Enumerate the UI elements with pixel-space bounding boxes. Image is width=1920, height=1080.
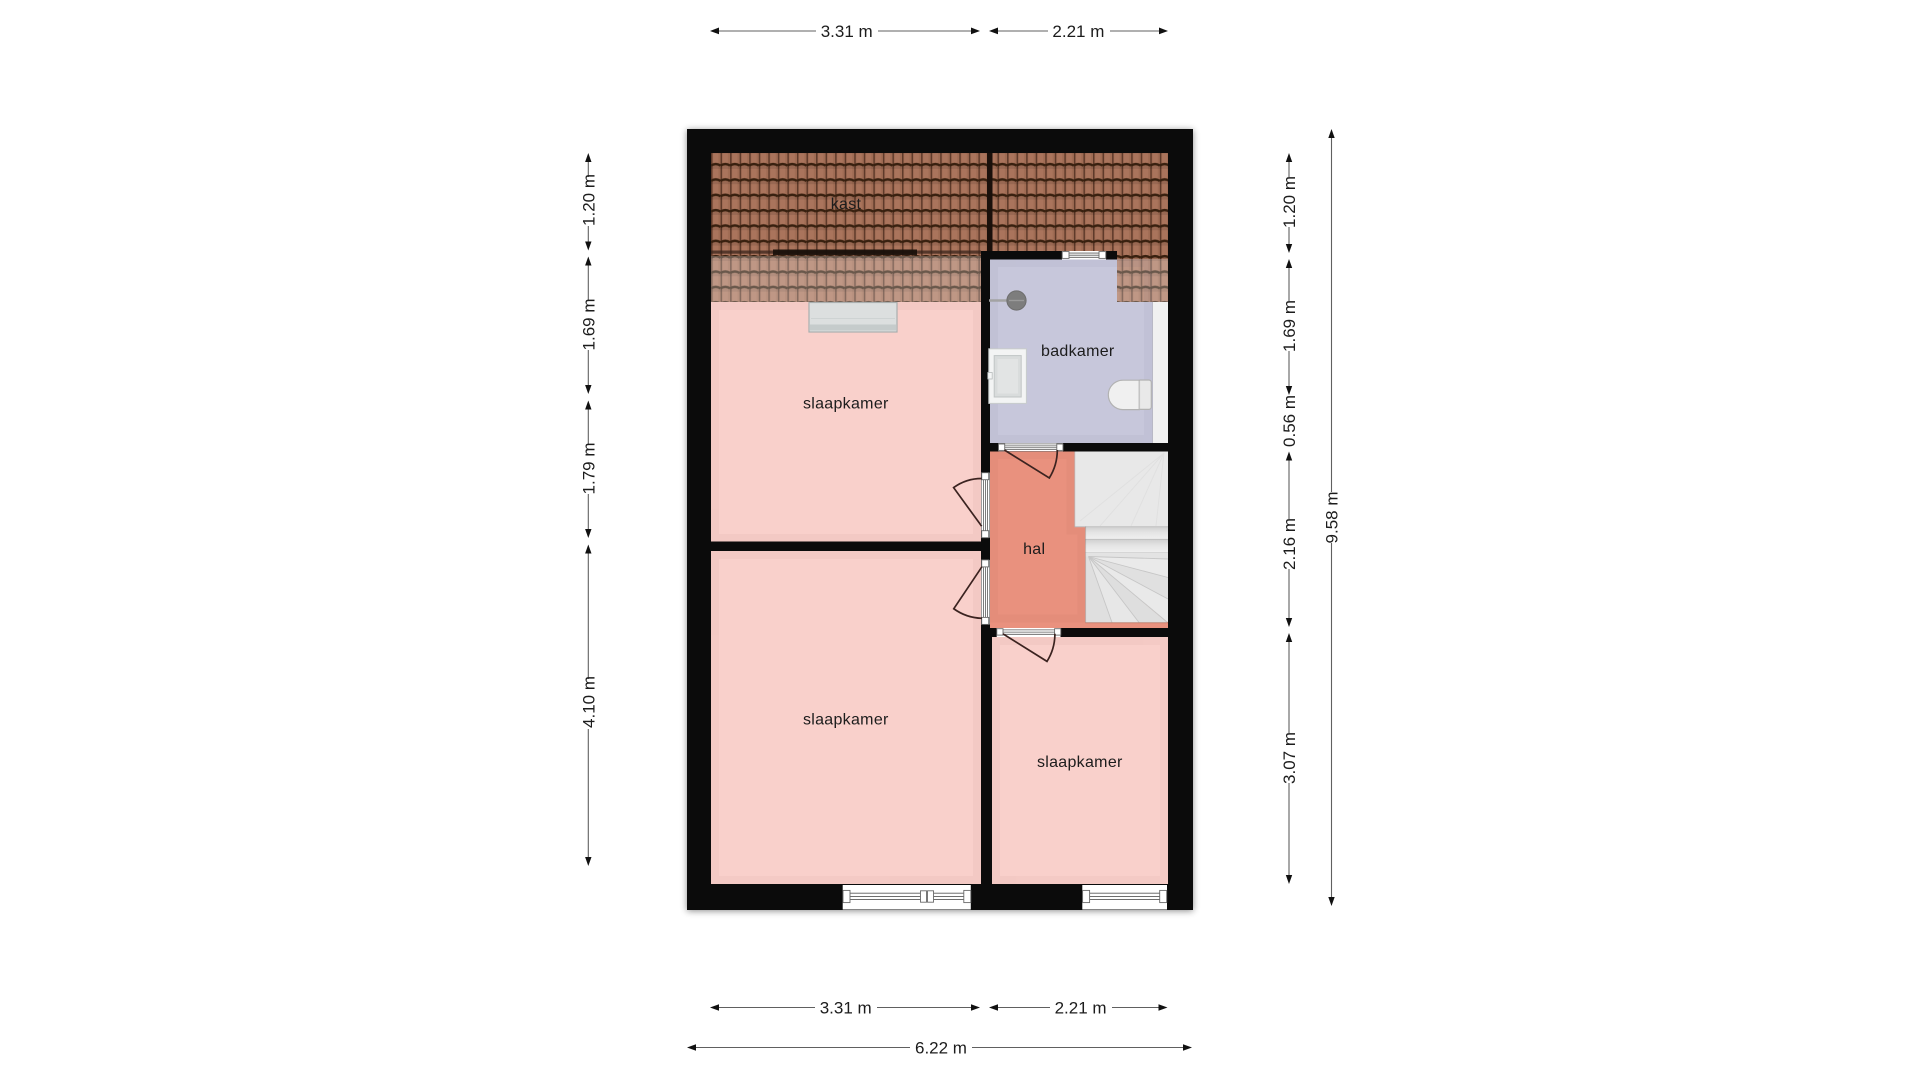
svg-text:0.56 m: 0.56 m: [1280, 395, 1299, 447]
svg-text:1.20 m: 1.20 m: [579, 174, 598, 226]
svg-text:1.69 m: 1.69 m: [579, 299, 598, 351]
svg-text:3.31 m: 3.31 m: [821, 22, 873, 41]
svg-text:slaapkamer: slaapkamer: [803, 712, 889, 729]
svg-text:2.21 m: 2.21 m: [1052, 22, 1104, 41]
svg-text:kast: kast: [831, 196, 862, 213]
svg-text:badkamer: badkamer: [1041, 343, 1115, 360]
svg-text:2.21 m: 2.21 m: [1055, 999, 1107, 1018]
svg-text:3.07 m: 3.07 m: [1280, 732, 1299, 784]
svg-text:9.58 m: 9.58 m: [1323, 492, 1342, 544]
svg-text:1.69 m: 1.69 m: [1280, 300, 1299, 352]
svg-text:4.10 m: 4.10 m: [579, 676, 598, 728]
svg-text:3.31 m: 3.31 m: [820, 999, 872, 1018]
svg-text:slaapkamer: slaapkamer: [1037, 754, 1123, 771]
svg-text:1.79 m: 1.79 m: [579, 443, 598, 495]
svg-text:slaapkamer: slaapkamer: [803, 396, 889, 413]
svg-text:6.22 m: 6.22 m: [915, 1039, 967, 1058]
svg-text:1.20 m: 1.20 m: [1280, 176, 1299, 228]
svg-text:2.16 m: 2.16 m: [1280, 518, 1299, 570]
svg-text:hal: hal: [1023, 541, 1045, 558]
